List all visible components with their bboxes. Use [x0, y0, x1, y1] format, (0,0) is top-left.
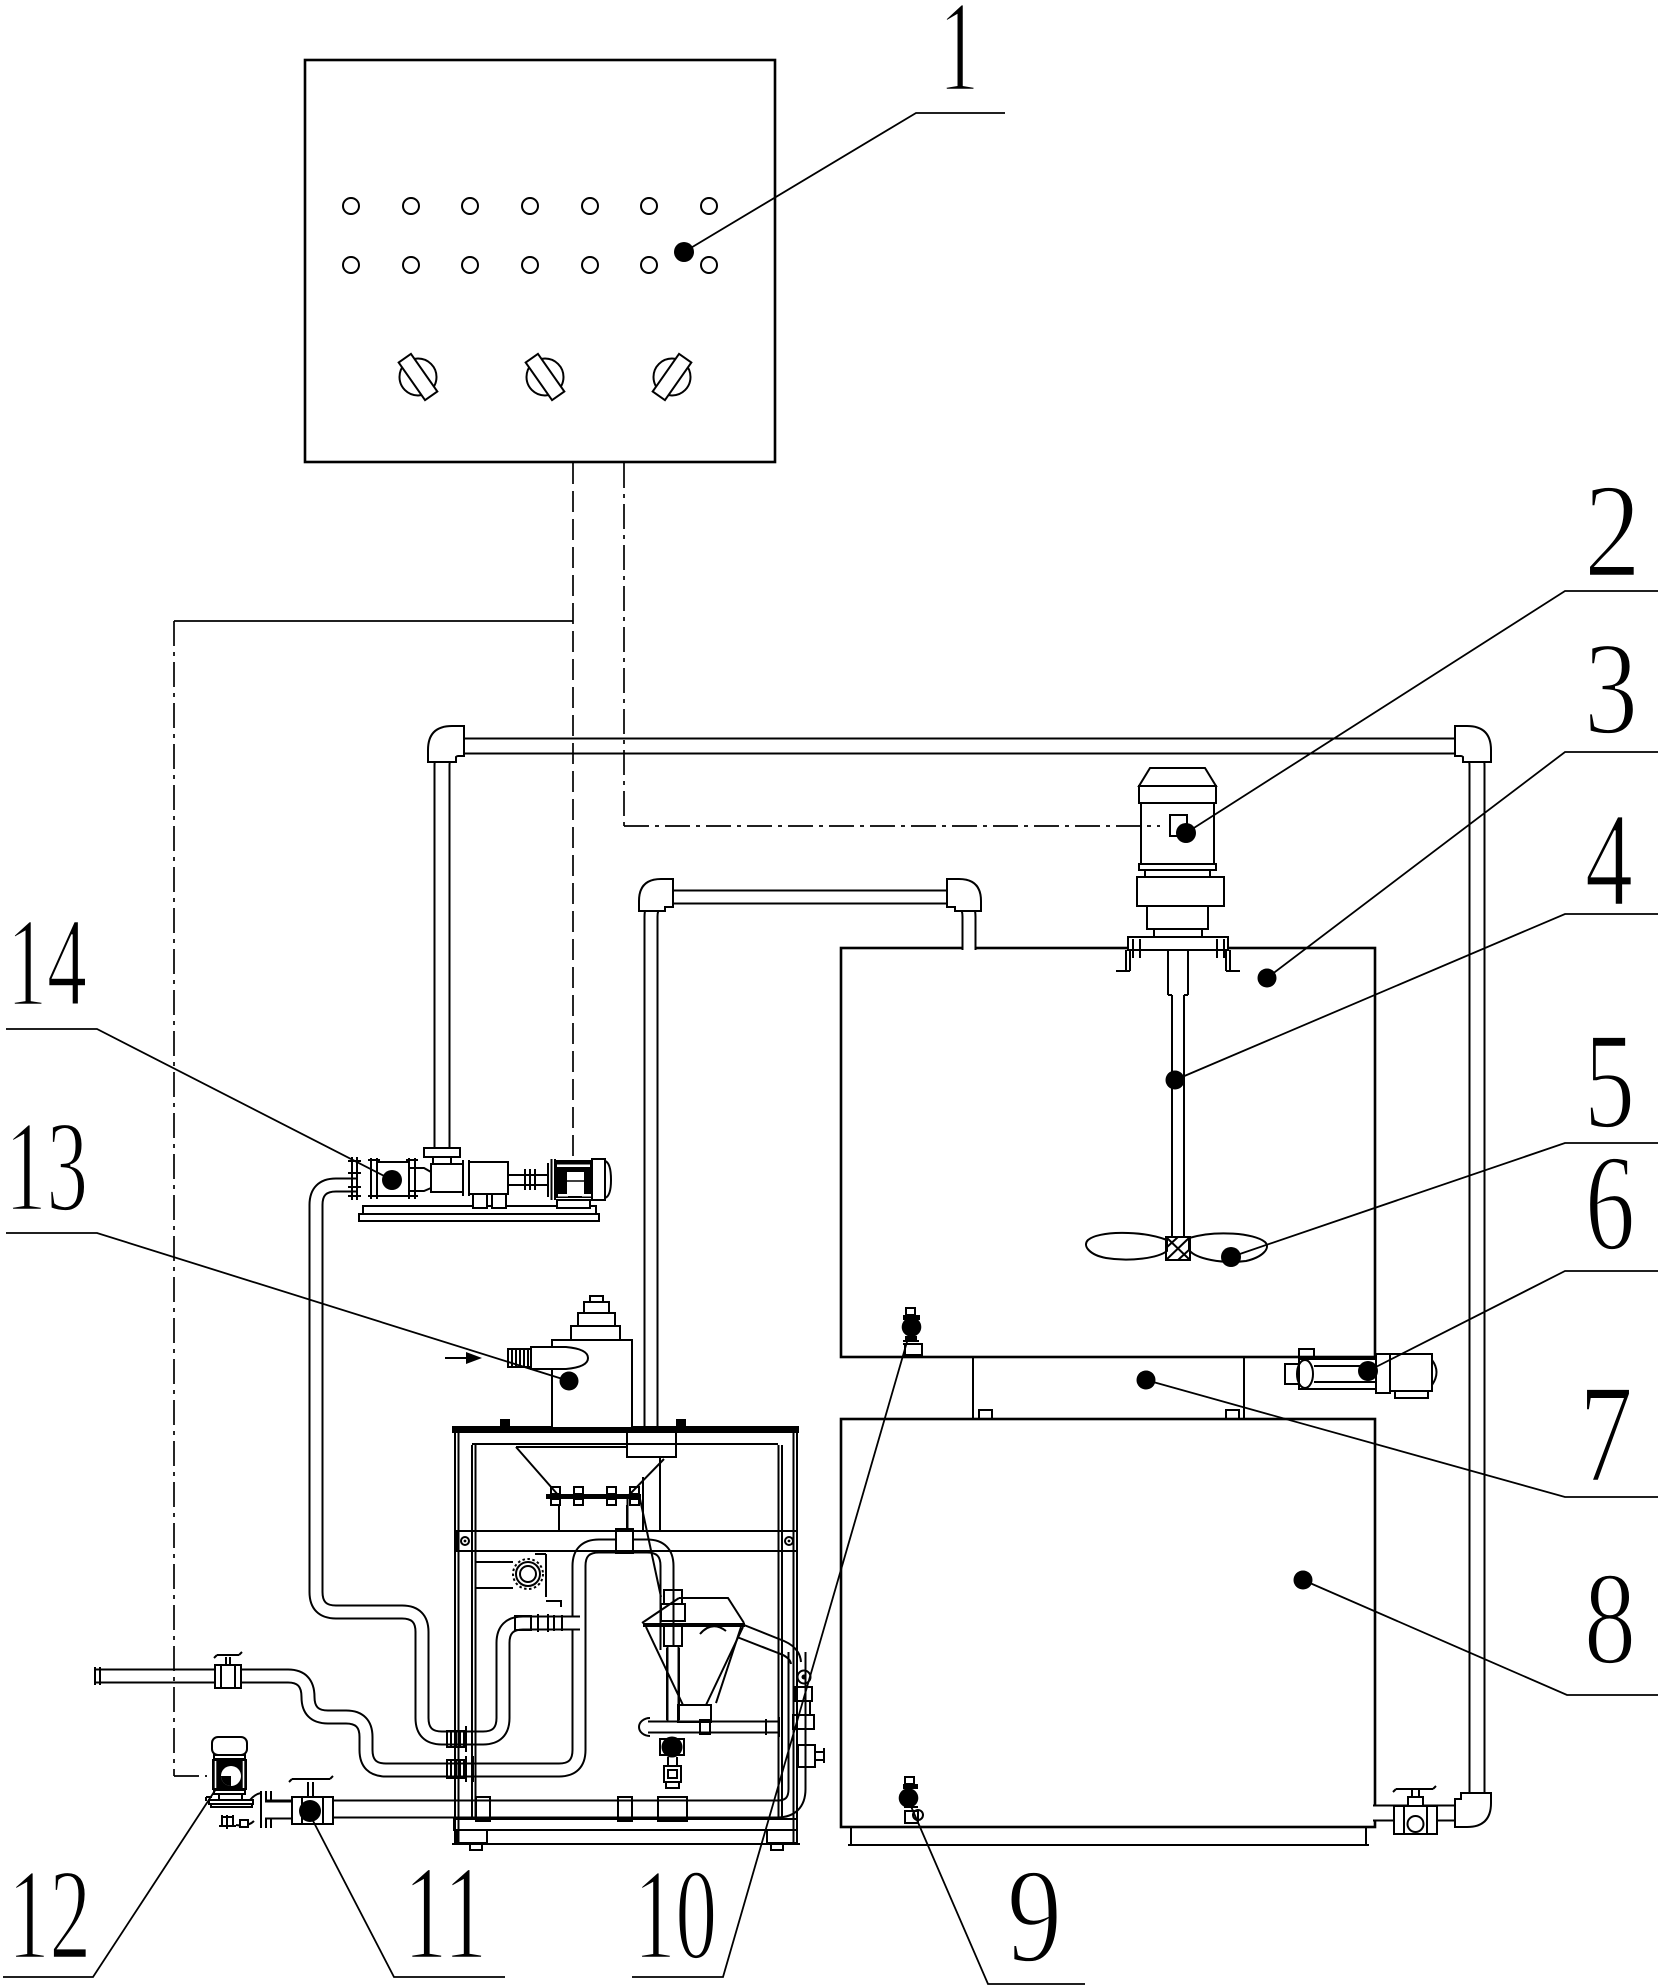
svg-text:7: 7: [1579, 1356, 1633, 1512]
svg-text:8: 8: [1584, 1544, 1636, 1692]
svg-text:6: 6: [1585, 1126, 1635, 1279]
svg-text:2: 2: [1584, 457, 1641, 606]
svg-text:1: 1: [939, 0, 979, 119]
svg-text:3: 3: [1584, 614, 1638, 762]
svg-text:10: 10: [634, 1843, 717, 1987]
svg-text:12: 12: [8, 1843, 91, 1987]
svg-text:14: 14: [7, 893, 87, 1033]
svg-text:4: 4: [1585, 786, 1633, 935]
svg-text:13: 13: [5, 1095, 88, 1239]
svg-text:9: 9: [1007, 1842, 1062, 1988]
svg-text:11: 11: [404, 1839, 487, 1988]
